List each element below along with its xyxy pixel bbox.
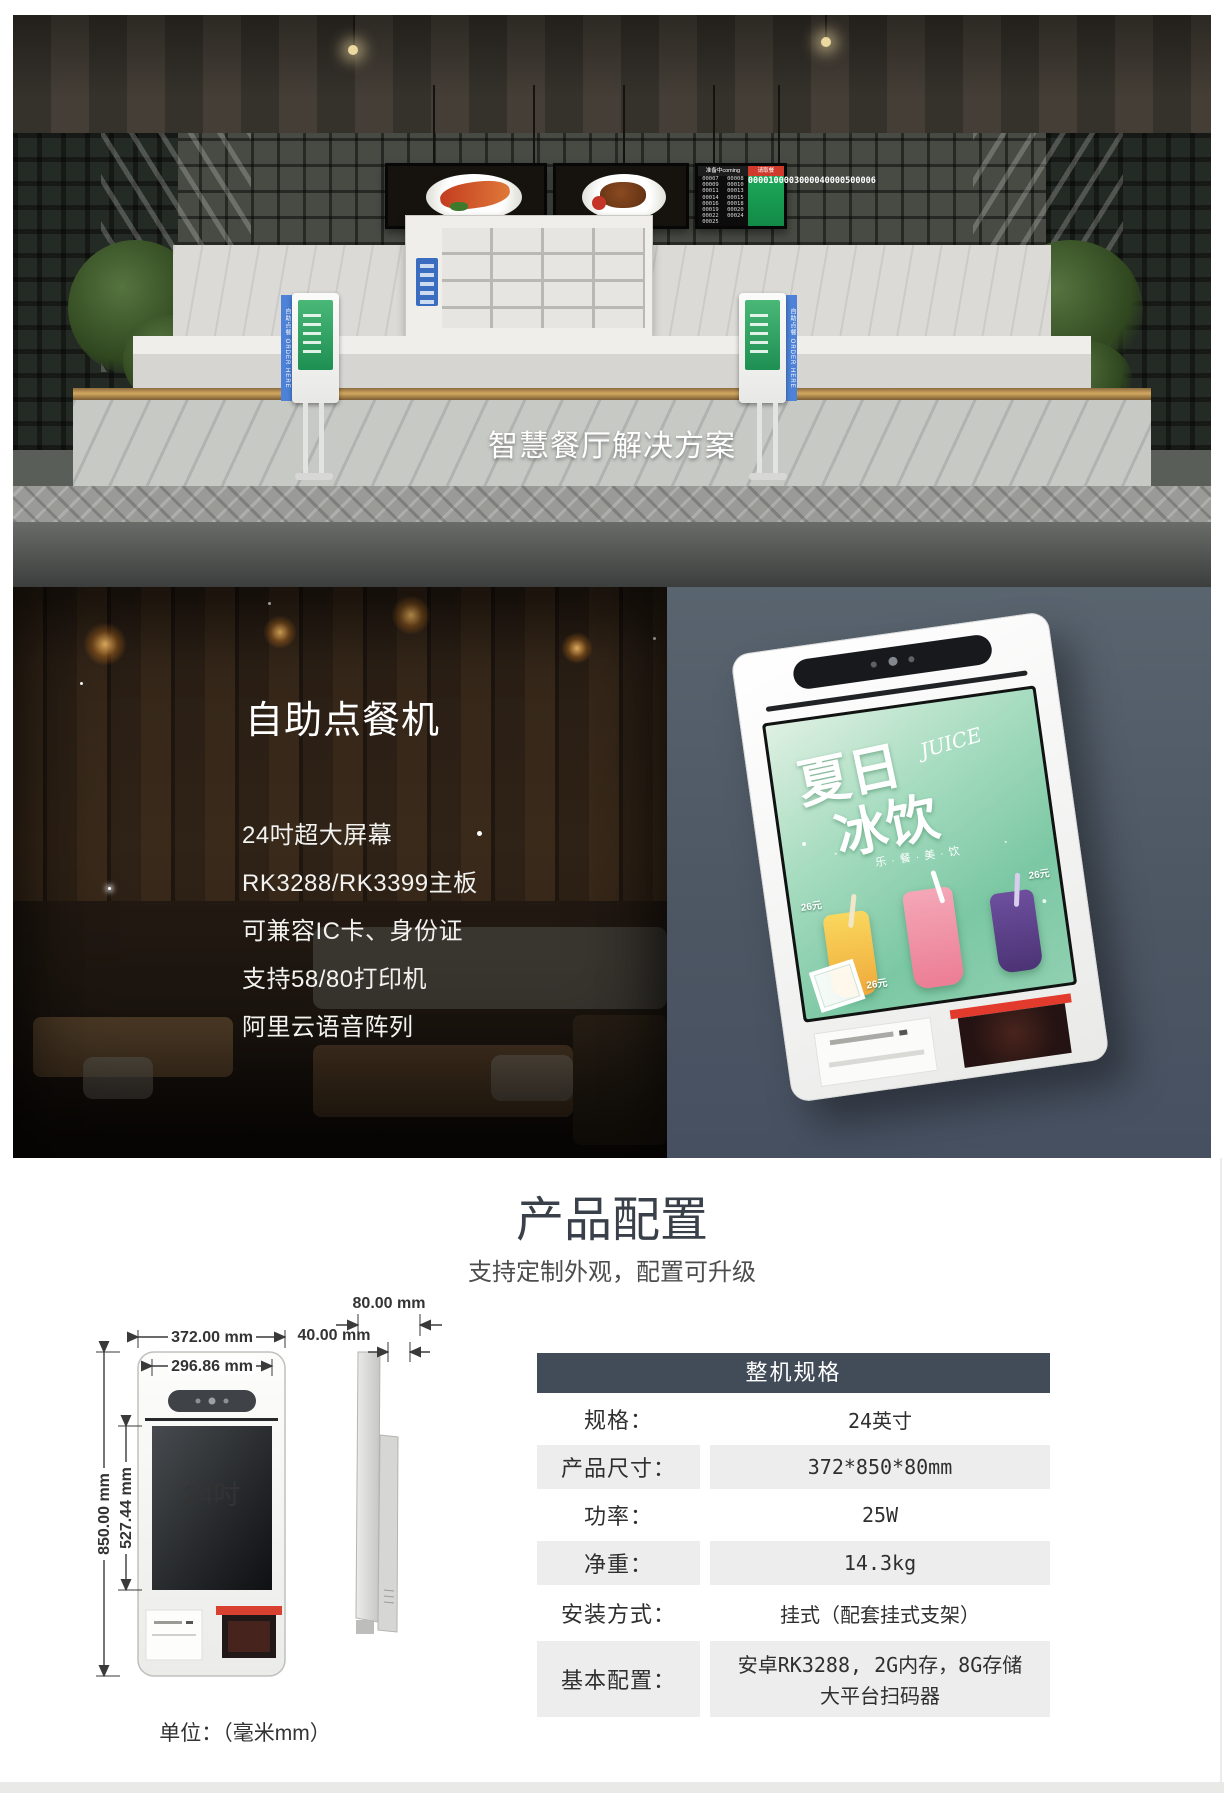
hero-banner: 准备中coming 000070000800009000100001100013…: [13, 15, 1211, 587]
camera-dot: [224, 1399, 229, 1404]
kiosk-display: 夏日 冰饮 JUICE 乐·餐·美·饮 26元 26元 26元: [762, 685, 1077, 1022]
queue-preparing-panel: 准备中coming 000070000800009000100001100013…: [698, 166, 748, 226]
lamp-cord: [825, 15, 827, 39]
unit-note: 单位：（毫米mm）: [159, 1722, 331, 1745]
section-subtitle: 支持定制外观，配置可升级: [0, 1252, 1224, 1287]
dim-depth-front: 40.00 mm: [298, 1327, 371, 1344]
steak-food: [600, 182, 646, 208]
kiosk-screen-menu-rows: [750, 314, 768, 354]
pickup-locker-cabinet: [405, 215, 653, 337]
receipt-printer-module: [814, 1017, 938, 1087]
printer-slot: [829, 1049, 925, 1067]
tomato: [592, 196, 606, 210]
kiosk-side-banner: 自助点餐 ORDER HERE: [786, 295, 797, 401]
board-rod: [533, 85, 535, 165]
kiosk-stand-leg: [303, 403, 308, 475]
locker-keypad: [416, 258, 438, 306]
front-marble-panel: 智慧餐厅解决方案: [73, 400, 1151, 486]
dim-height-outer: 850.00 mm: [96, 1473, 113, 1555]
kiosk-screen: [745, 300, 780, 370]
section-title: 产品配置: [0, 1180, 1224, 1250]
locker-doors-grid: [442, 228, 645, 328]
camera-dot: [196, 1399, 201, 1404]
printer-label: [830, 1031, 894, 1045]
board-rod: [623, 85, 625, 165]
spec-label: 安装方式：: [537, 1585, 700, 1641]
kiosk-product-photo: 夏日 冰饮 JUICE 乐·餐·美·饮 26元 26元 26元: [730, 611, 1110, 1103]
speaker-slit-line: [145, 1418, 278, 1421]
feature-item: RK3288/RK3399主板: [242, 863, 478, 898]
feature-item: 24吋超大屏幕: [242, 815, 392, 850]
dim-depth-outer: 80.00 mm: [353, 1295, 426, 1312]
product-heading: 自助点餐机: [245, 689, 440, 744]
camera-lens: [888, 656, 898, 666]
feature-item: 阿里云语音阵列: [242, 1007, 414, 1042]
board-rod: [713, 85, 715, 165]
board-rod: [778, 85, 780, 165]
camera-lens-dot: [870, 661, 877, 668]
ceiling-lamp: [348, 45, 358, 55]
kiosk-stand-base: [295, 473, 333, 480]
spec-value: 372*850*80mm: [710, 1445, 1050, 1489]
spec-label: 功率：: [537, 1489, 700, 1541]
restaurant-photo-panel: 自助点餐机 24吋超大屏幕 RK3288/RK3399主板 可兼容IC卡、身份证…: [13, 587, 667, 1158]
kiosk-body: [739, 293, 786, 403]
spec-value: 挂式（配套挂式支架）: [710, 1585, 1050, 1641]
feature-item: 可兼容IC卡、身份证: [242, 911, 463, 946]
spec-row: 安装方式： 挂式（配套挂式支架）: [537, 1585, 1050, 1641]
spec-label: 产品尺寸：: [537, 1445, 700, 1489]
spec-row: 基本配置： 安卓RK3288, 2G内存，8G存储 大平台扫码器: [537, 1641, 1050, 1717]
spec-value: 14.3kg: [710, 1541, 1050, 1585]
kiosk-body: [292, 293, 339, 403]
spec-table: 整机规格 规格： 24英寸 产品尺寸： 372*850*80mm 功率： 25W…: [537, 1353, 1050, 1717]
kiosk-stand-base: [749, 473, 787, 480]
spec-table-header: 整机规格: [537, 1353, 1050, 1393]
gold-trim-strip: [73, 388, 1151, 400]
queue-preparing-label: 准备中coming: [698, 166, 748, 176]
dim-width-outer: 372.00 mm: [171, 1329, 253, 1346]
scanner-red-stripe: [216, 1606, 282, 1615]
kiosk-stand-leg: [773, 403, 778, 475]
printer-label-line: [154, 1621, 182, 1624]
spec-value: 24英寸: [710, 1393, 1050, 1445]
queue-ready-panel: 请取餐 0000100003000040000500006: [748, 166, 784, 226]
ceiling-lamp: [821, 37, 831, 47]
strawberry-drink: [902, 886, 965, 990]
kiosk-screen-menu-rows: [303, 314, 321, 354]
summer-drinks-ad: 夏日 冰饮 JUICE 乐·餐·美·饮 26元 26元 26元: [765, 689, 1074, 1020]
printer-label-mark: [186, 1621, 193, 1624]
tiled-floor: [13, 486, 1211, 522]
printer-label-mark: [899, 1030, 908, 1036]
screen-size-label: 24吋: [183, 1480, 240, 1510]
spec-row: 产品尺寸： 372*850*80mm: [537, 1445, 1050, 1489]
spec-value-line1: 安卓RK3288, 2G内存，8G存储: [738, 1649, 1023, 1678]
price-tag: 26元: [800, 896, 823, 914]
product-intro-section: 自助点餐机 24吋超大屏幕 RK3288/RK3399主板 可兼容IC卡、身份证…: [13, 587, 1211, 1158]
wood-ceiling: [13, 15, 1211, 133]
kiosk-screen: [298, 300, 333, 370]
garnish: [450, 202, 468, 211]
snow-dots: [802, 842, 807, 847]
kiosk-stand-leg: [319, 403, 324, 475]
kiosk-side-banner: 自助点餐 ORDER HERE: [281, 295, 292, 401]
spec-label: 基本配置：: [537, 1641, 700, 1717]
product-config-section: 产品配置 支持定制外观，配置可升级 24吋: [0, 1158, 1224, 1793]
side-view-back-slab: [356, 1352, 380, 1622]
camera-lens: [209, 1398, 216, 1405]
dark-floor: [13, 522, 1211, 587]
counter-front-marble: [133, 354, 1091, 388]
spec-row: 规格： 24英寸: [537, 1393, 1050, 1445]
queue-preparing-numbers: 0000700008000090001000011000130001400015…: [698, 176, 748, 226]
queue-status-board: 准备中coming 000070000800009000100001100013…: [695, 163, 787, 229]
side-view-foot: [356, 1620, 374, 1634]
kiosk-stand-leg: [757, 403, 762, 475]
scanner-module: [950, 993, 1079, 1071]
counter-top: [133, 336, 1091, 356]
footer-strip: [0, 1782, 1224, 1793]
feature-item: 支持58/80打印机: [242, 959, 427, 994]
spec-value-line2: 大平台扫码器: [820, 1680, 940, 1709]
spec-value: 安卓RK3288, 2G内存，8G存储 大平台扫码器: [710, 1641, 1050, 1717]
price-tag: 26元: [865, 974, 888, 992]
page-right-edge: [1220, 1158, 1222, 1793]
ad-script-word: JUICE: [917, 722, 984, 762]
queue-ready-numbers: 0000100003000040000500006: [748, 176, 784, 186]
dim-width-inner: 296.86 mm: [171, 1358, 253, 1375]
spec-row: 净重： 14.3kg: [537, 1541, 1050, 1585]
queue-ready-label: 请取餐: [748, 166, 784, 176]
printer-slot-line: [152, 1634, 196, 1636]
board-rod: [433, 85, 435, 165]
camera-lens-dot: [908, 656, 915, 663]
spec-label: 规格：: [537, 1393, 700, 1445]
price-tag: 26元: [1027, 864, 1050, 882]
spec-label: 净重：: [537, 1541, 700, 1585]
product-photo-panel: 夏日 冰饮 JUICE 乐·餐·美·饮 26元 26元 26元: [667, 587, 1211, 1158]
ordering-kiosk-left: 自助点餐 ORDER HERE: [281, 293, 343, 489]
spec-row: 功率： 25W: [537, 1489, 1050, 1541]
scanner-glass: [228, 1621, 270, 1652]
spec-value: 25W: [710, 1489, 1050, 1541]
lamp-cord: [353, 15, 355, 47]
banner-title: 智慧餐厅解决方案: [488, 421, 736, 465]
ordering-kiosk-right: 自助点餐 ORDER HERE: [735, 293, 797, 489]
dim-height-screen: 527.44 mm: [118, 1467, 135, 1549]
dimension-drawing: 24吋 372.00 mm 296.86 mm 850.00 mm 527.44…: [50, 1290, 480, 1770]
